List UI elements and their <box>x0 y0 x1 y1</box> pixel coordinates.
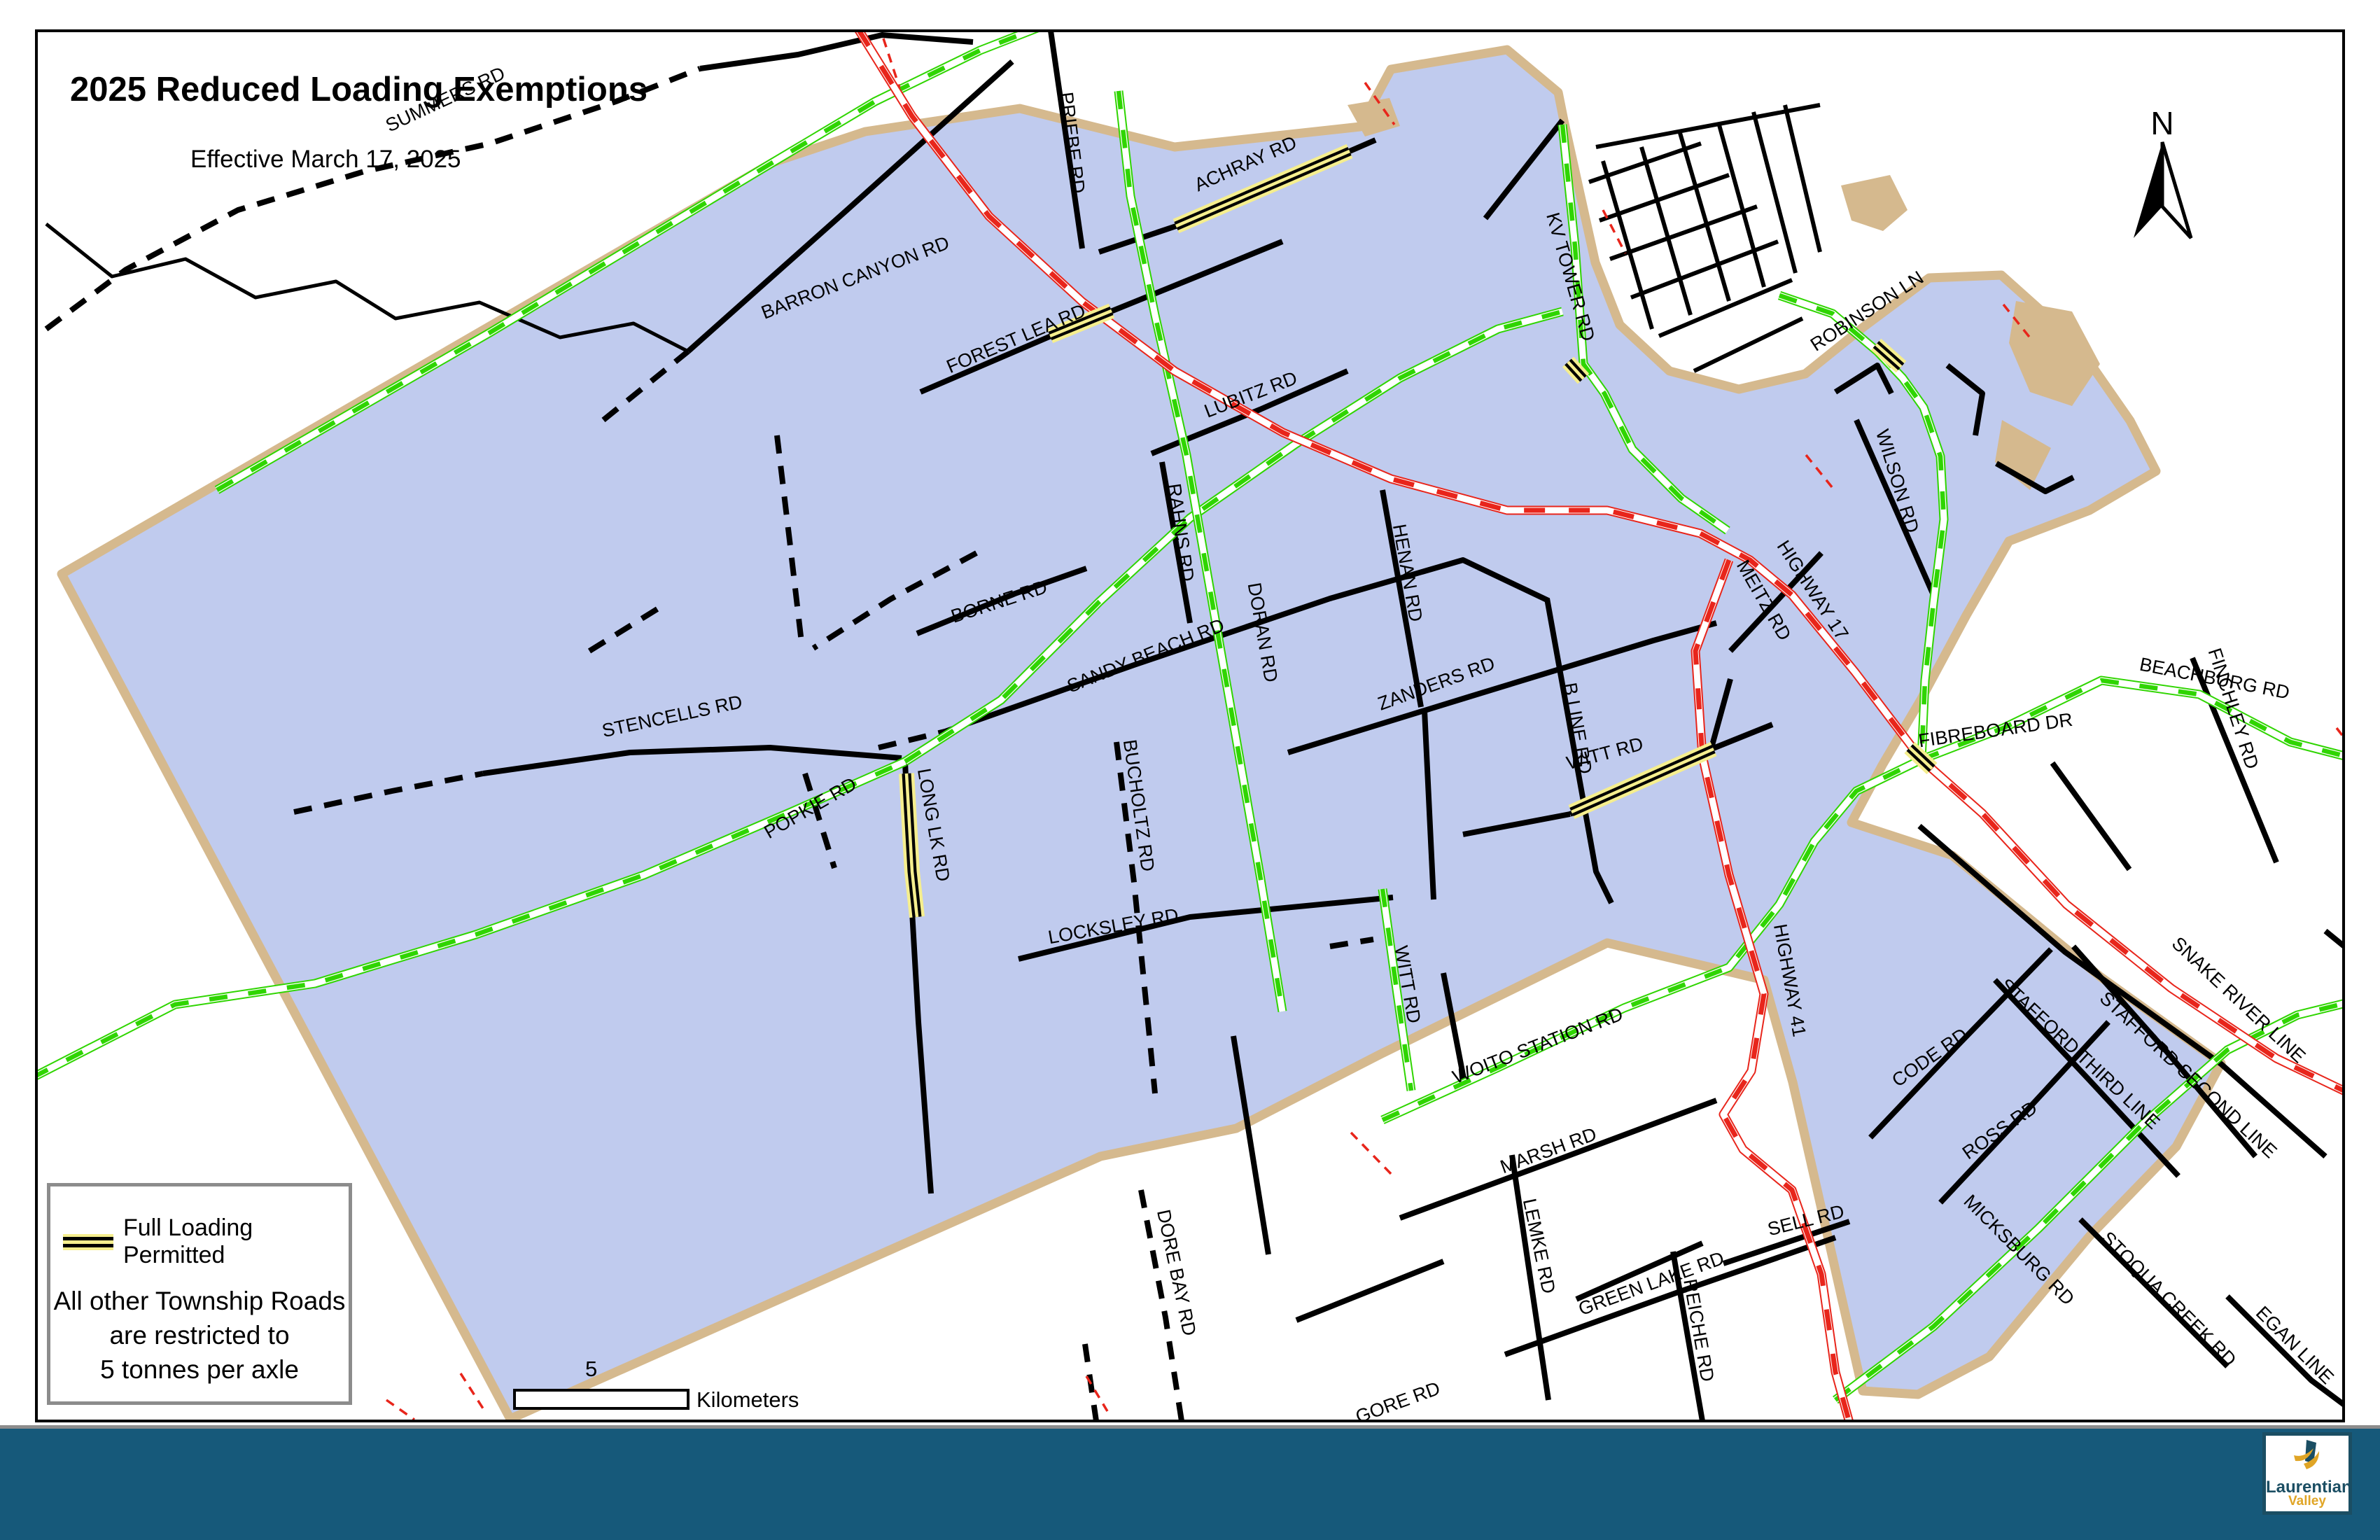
laurentian-valley-logo: Laurentian Valley <box>2262 1432 2352 1515</box>
legend-note-line-1: All other Township Roads <box>50 1284 349 1319</box>
map-page: { "title": {"text": "2025 Reduced Loadin… <box>0 0 2380 1540</box>
logo-leaf-icon <box>2292 1440 2327 1479</box>
scalebar-value: 5 <box>585 1357 597 1382</box>
map-subtitle: Effective March 17, 2025 <box>190 146 461 174</box>
map-title: 2025 Reduced Loading Exemptions <box>70 70 647 109</box>
full-loading-road-icon <box>63 1234 113 1250</box>
legend-note-line-2: are restricted to <box>50 1319 349 1353</box>
legend-note-line-3: 5 tonnes per axle <box>50 1353 349 1387</box>
scalebar <box>513 1389 689 1410</box>
legend-full-loading-label: Full Loading Permitted <box>123 1214 349 1269</box>
map-frame-border <box>35 29 2345 1422</box>
legend-box: Full Loading Permitted All other Townshi… <box>47 1183 352 1405</box>
footer-bar <box>0 1425 2380 1540</box>
scalebar-unit: Kilometers <box>696 1387 799 1413</box>
legend-restriction-note: All other Township Roads are restricted … <box>50 1284 349 1387</box>
